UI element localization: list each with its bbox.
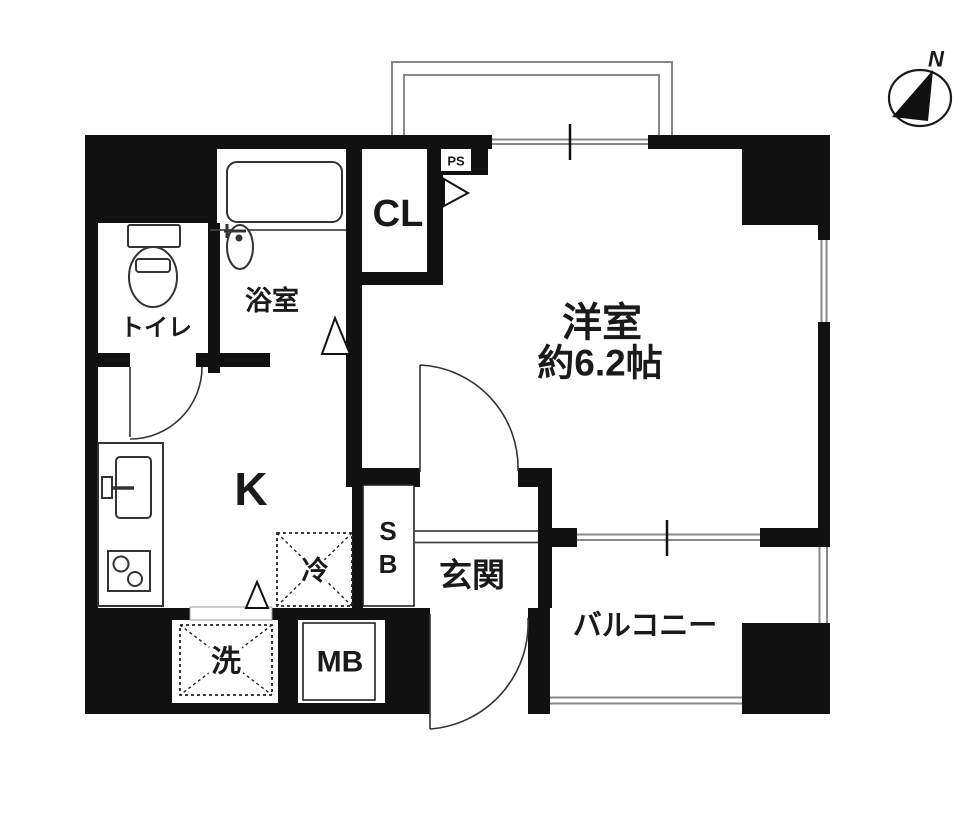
label-western-room-size: 約6.2帖 [537,343,662,384]
kitchen-door-triangle [246,582,268,608]
toilet-door-swing [130,367,202,439]
entrance-door-swing [430,614,528,729]
bath-faucet [224,224,253,269]
label-meter-box: MB [317,646,364,679]
window-north [492,124,648,160]
floor-plan-page: トイレ 浴室 CL PS 洋室 約6.2帖 K 冷 S B 玄関 バルコニー 洗… [0,0,976,816]
entrance-step-lines [415,531,538,543]
window-bay-outline [392,62,672,140]
label-closet: CL [373,193,424,235]
stove [108,551,150,591]
window-east [818,240,830,322]
label-shoe-box-b: B [379,549,398,579]
closet-door-triangle [444,179,468,206]
compass-north-label: N [928,47,945,72]
label-washer: 洗 [211,646,241,679]
floor-plan-drawing: トイレ 浴室 CL PS 洋室 約6.2帖 K 冷 S B 玄関 バルコニー 洗… [0,0,976,816]
label-pipe-space: PS [447,154,465,169]
toilet-fixture [128,225,180,307]
label-toilet: トイレ [120,315,192,342]
bathtub [210,162,346,230]
label-balcony: バルコニー [573,610,717,642]
label-kitchen: K [234,463,267,515]
label-bath: 浴室 [245,285,299,316]
label-entrance: 玄関 [439,557,505,594]
label-western-room: 洋室 [562,301,642,345]
compass-north-icon: N [889,47,951,127]
bath-door-triangle [322,318,350,354]
label-shoe-box-s: S [379,516,396,546]
bedroom-door-swing [420,365,518,472]
window-balcony [577,520,760,556]
label-refrigerator: 冷 [302,556,329,586]
